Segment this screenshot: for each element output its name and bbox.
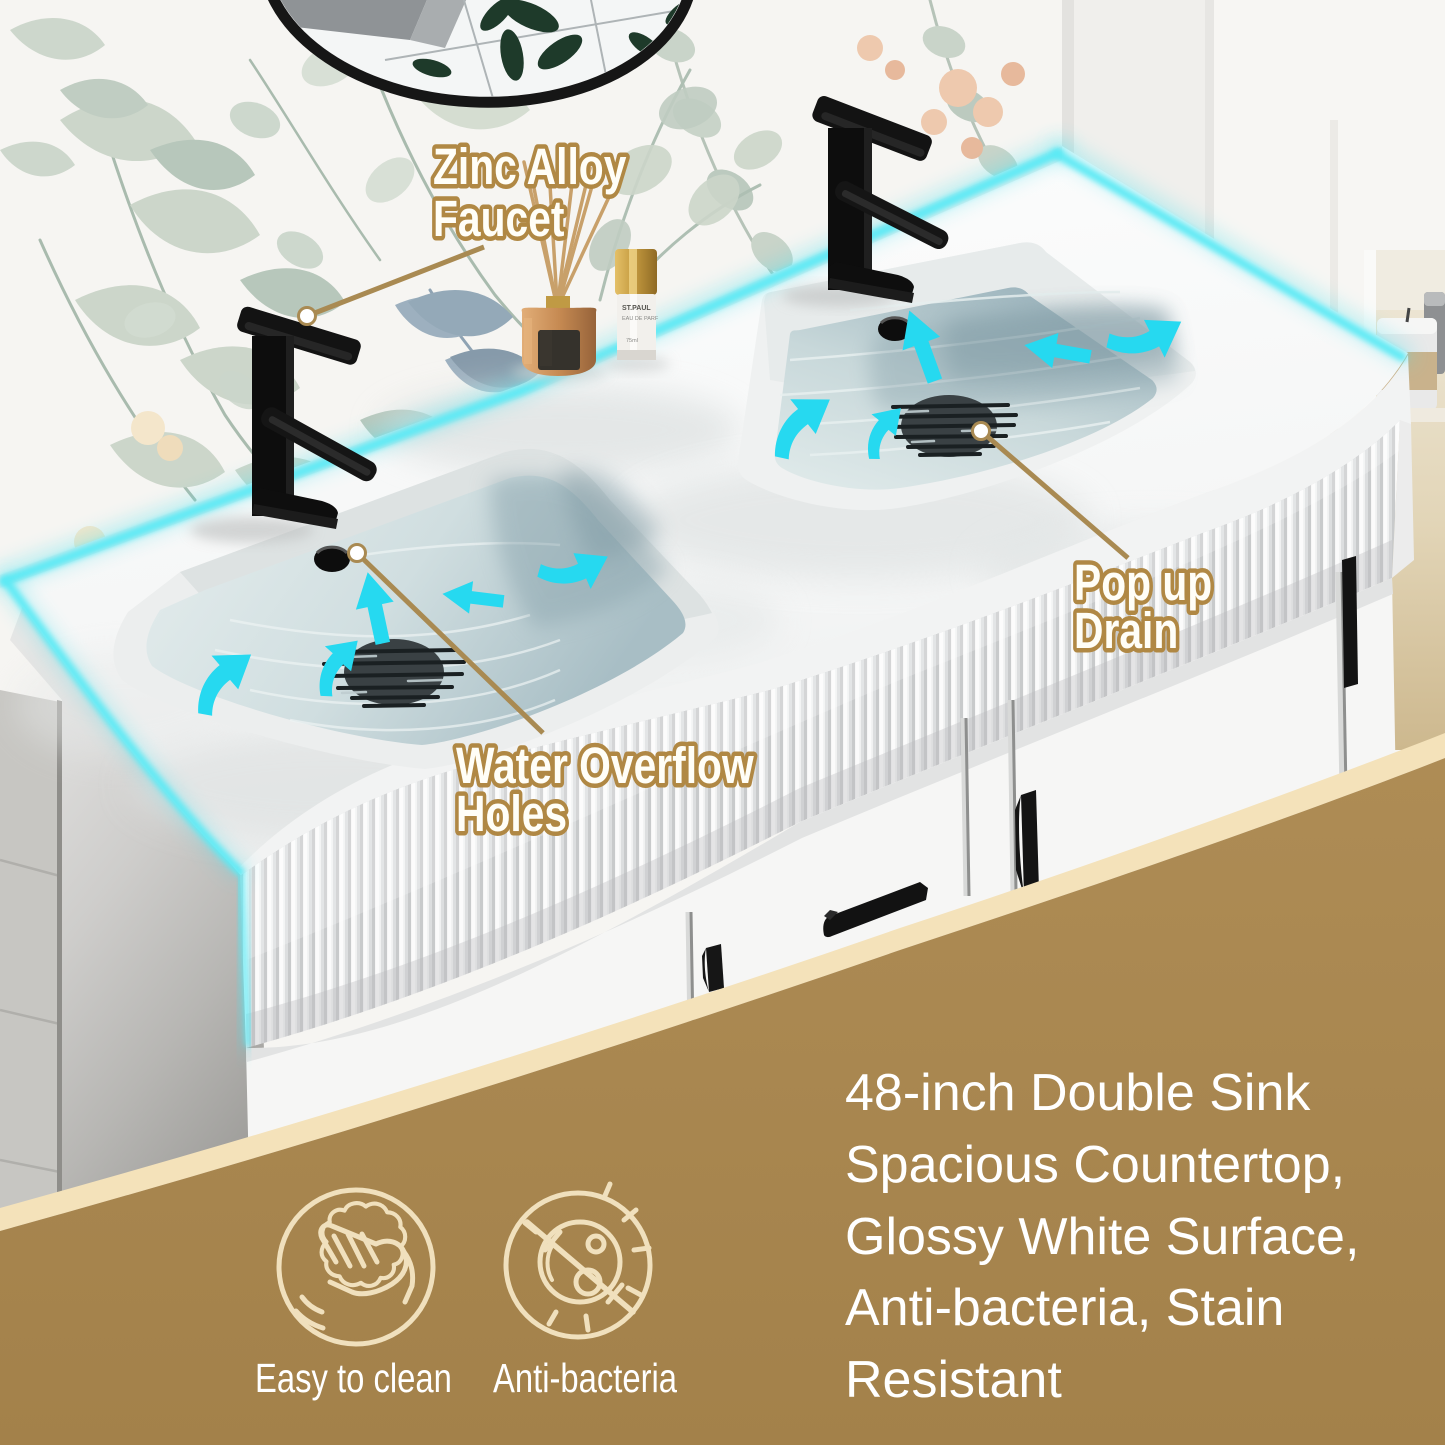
svg-text:Anti-bacteria: Anti-bacteria [493,1354,677,1400]
svg-text:Spacious Countertop,: Spacious Countertop, [845,1136,1345,1194]
svg-text:Zinc Alloy: Zinc Alloy [433,138,627,195]
svg-text:ST.PAUL: ST.PAUL [622,305,651,312]
svg-text:Resistant: Resistant [845,1351,1062,1409]
svg-text:Anti-bacteria, Stain: Anti-bacteria, Stain [845,1279,1284,1337]
svg-text:75ml: 75ml [626,338,638,344]
svg-text:Easy to clean: Easy to clean [255,1354,452,1400]
svg-text:Holes: Holes [456,785,567,842]
svg-text:Glossy White Surface,: Glossy White Surface, [845,1208,1359,1266]
svg-text:EAU DE PARF: EAU DE PARF [622,316,659,322]
svg-text:Drain: Drain [1074,602,1178,659]
svg-text:48-inch Double Sink: 48-inch Double Sink [845,1064,1311,1122]
svg-text:Faucet: Faucet [433,190,564,247]
